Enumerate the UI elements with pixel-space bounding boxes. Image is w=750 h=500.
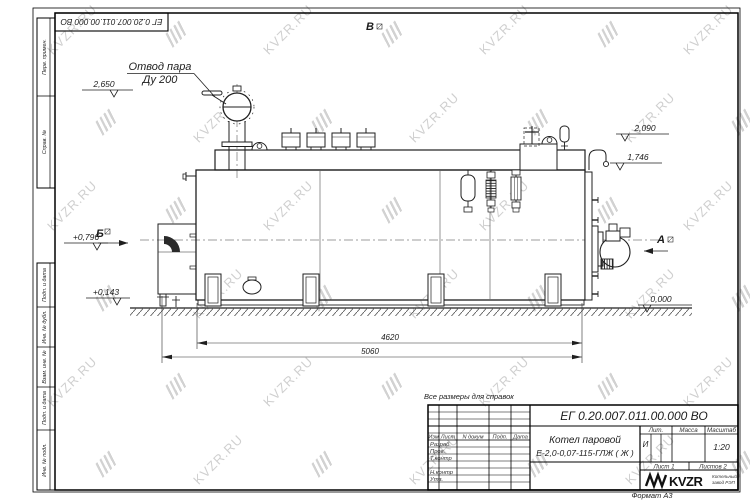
scale-value: 1:20 — [713, 442, 730, 452]
frame-col-podp-data-2: Подп. и дата — [42, 391, 48, 425]
ground-line — [130, 308, 692, 316]
elevation-top: 2,650 — [92, 79, 115, 89]
left-fan-box — [157, 224, 196, 307]
brand-sub2: завод РЭП — [711, 480, 736, 485]
lit-value: И — [643, 440, 649, 449]
frame-col-perv-primen: Перв. примен. — [42, 39, 48, 75]
titleblock-product-line1: Котел паровой — [549, 435, 621, 446]
drawing-sheet: ЕГ 0.20.007.011.00.000 ВО Перв. примен. … — [0, 0, 750, 500]
sheets-total: Листов 2 — [698, 464, 727, 471]
elevation-right-upper: 2,090 — [633, 123, 656, 133]
dimension-inner: 4620 — [381, 333, 399, 342]
view-marker-b: Б — [96, 228, 104, 240]
brand-spring-icon — [646, 475, 666, 486]
doc-number-top: ЕГ 0.20.007.011.00.000 ВО — [60, 17, 163, 27]
burner — [592, 224, 630, 272]
lit-label: Лит. — [648, 427, 664, 434]
row-tkontr: Т.контр — [430, 456, 453, 462]
frame-col-sprav-no: Справ. № — [42, 130, 48, 155]
col-data: Дата — [512, 435, 528, 441]
reference-note: Все размеры для справок — [424, 392, 514, 401]
brand-logo-text: KVZR — [669, 474, 704, 489]
valve-handwheel — [202, 91, 222, 95]
elevation-zero: 0,000 — [650, 294, 672, 304]
col-izm: Изм — [428, 435, 439, 441]
elevation-left-lower: +0,143 — [93, 287, 120, 297]
safety-valves — [252, 128, 375, 150]
callout-line2: Ду 200 — [141, 74, 179, 86]
mass-label: Масса — [679, 427, 698, 434]
col-podp: Подп. — [493, 435, 508, 441]
manhole — [243, 280, 261, 294]
col-list: Лист — [440, 435, 456, 441]
row-utv: Утв. — [429, 477, 443, 483]
brand-sub1: Котельный — [712, 473, 737, 479]
titleblock-doc-number: ЕГ 0.20.007.011.00.000 ВО — [560, 409, 708, 423]
row-prov: Пров. — [430, 449, 445, 455]
view-marker-a: А — [656, 234, 665, 246]
row-razrab: Разраб. — [430, 442, 451, 448]
scale-label: Масштаб — [707, 427, 736, 434]
frame-col-inv-dubl: Инв. № дубл. — [42, 310, 48, 343]
format-note: Формат А3 — [631, 491, 673, 500]
dimension-lines: 4620 5060 — [162, 296, 582, 363]
row-nkontr: Н.контр — [430, 470, 454, 476]
callout-line1: Отвод пара — [129, 61, 192, 73]
frame-col-podp-data-1: Подп. и дата — [42, 268, 48, 302]
view-marker-v: В — [366, 21, 374, 33]
frame-col-vzam-inv: Взам. инв. № — [42, 350, 48, 384]
support-foot — [205, 274, 561, 306]
frame-col-inv-podl: Инв. № подл. — [42, 443, 48, 476]
dimension-overall: 5060 — [361, 347, 379, 356]
level-gauges — [461, 170, 521, 212]
titleblock-product-line2: Е-2,0-0,07-115-ГЛЖ ( Ж ) — [536, 448, 634, 458]
elevation-right-lower: 1,746 — [627, 152, 649, 162]
col-ndoc: N докум — [462, 435, 483, 441]
title-block: ЕГ 0.20.007.011.00.000 ВО Котел паровой … — [428, 405, 738, 490]
sheet-no: Лист 1 — [652, 464, 674, 471]
steam-outlet-valve — [202, 84, 254, 178]
